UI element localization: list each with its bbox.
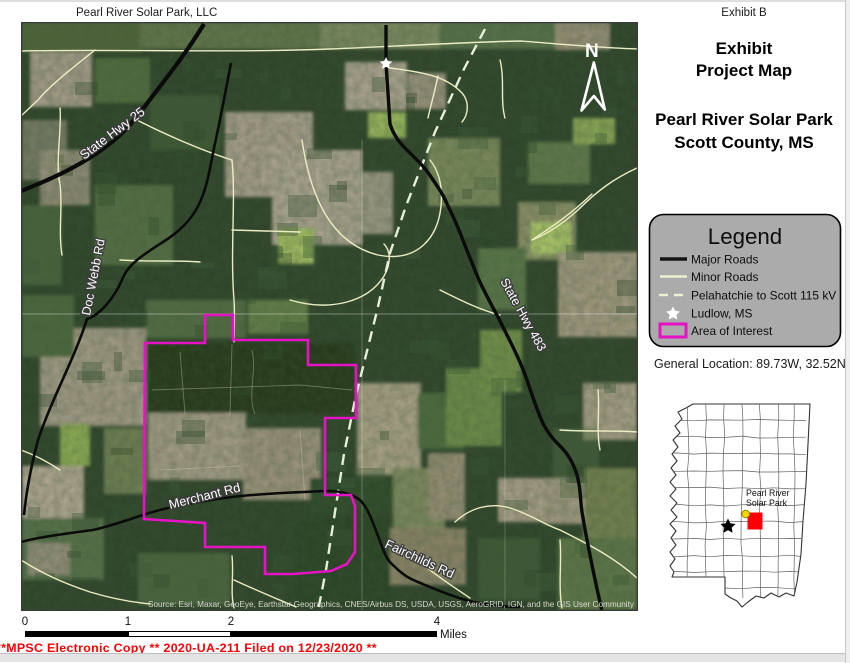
svg-text:N: N [585,41,599,62]
svg-text:Major Roads: Major Roads [691,253,758,267]
svg-text:Minor Roads: Minor Roads [691,270,758,284]
svg-text:Pelahatchie to Scott 115 kV: Pelahatchie to Scott 115 kV [691,289,836,303]
svg-text:Area of Interest: Area of Interest [691,324,773,338]
svg-text:Legend: Legend [708,224,782,249]
svg-text:Pearl River: Pearl River [746,488,790,498]
svg-text:Source: Esri, Maxar, GeoEye, E: Source: Esri, Maxar, GeoEye, Earthstar G… [148,600,635,609]
svg-text:Solar Park: Solar Park [746,498,788,508]
svg-text:Ludlow, MS: Ludlow, MS [691,307,753,321]
